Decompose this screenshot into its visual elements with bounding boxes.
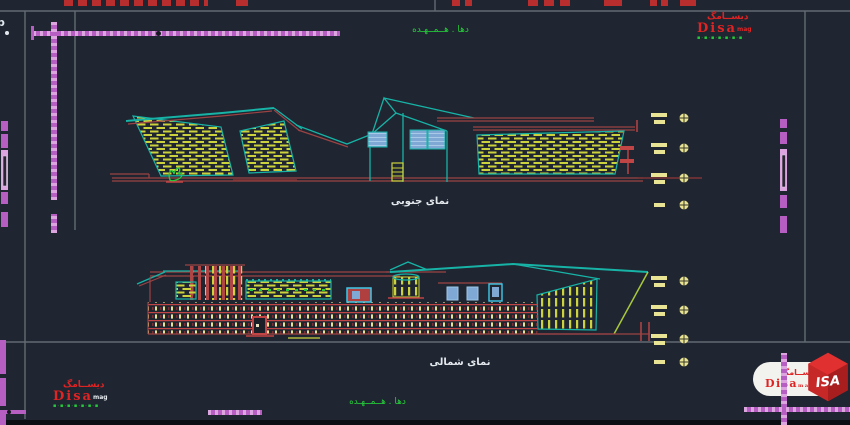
level-marker-icon — [651, 113, 689, 124]
window-blue-red — [347, 288, 371, 302]
bottom-right-magenta-vline — [781, 353, 787, 425]
left-magenta-section-marks — [0, 121, 26, 425]
south-elevation-label: نمای جنوبی — [375, 196, 465, 207]
disa-green-row: ▪·▪·▪·▪·▪·▪·▪ — [53, 404, 108, 409]
level-markers-north — [651, 276, 689, 367]
level-marker-icon — [654, 357, 689, 367]
framed-window — [489, 284, 502, 301]
svg-text:ISA: ISA — [815, 374, 841, 391]
ruler-dot — [156, 31, 161, 36]
level-marker-icon — [654, 200, 689, 210]
right-magenta-section-marks — [780, 119, 787, 233]
bottom-magenta-dash — [208, 410, 262, 415]
sheet-title-top: دها . هــمــهـده — [348, 25, 533, 35]
vertical-ruler-line-segment — [51, 214, 57, 233]
cylinder-column — [386, 262, 446, 298]
north-elevation-drawing — [137, 262, 650, 341]
horizontal-ruler-line — [33, 31, 340, 36]
ruler-end-tick — [31, 26, 34, 40]
south-elevation-drawing — [110, 98, 643, 182]
level-marker-icon — [651, 143, 689, 154]
disa-wordmark: Disamag — [697, 22, 752, 35]
disa-logo-top-right: دیســامگ Disamag ▪·▪·▪·▪·▪·▪·▪ — [697, 13, 752, 41]
level-marker-icon — [651, 305, 689, 316]
level-marker-icon — [651, 334, 689, 345]
bottom-right-magenta-hline — [744, 407, 850, 412]
disa-green-row: ▪·▪·▪·▪·▪·▪·▪ — [697, 36, 752, 41]
disa-wordmark: Disamag — [53, 390, 108, 403]
north-elevation-label: نمای شمالی — [420, 357, 500, 368]
level-markers-south — [638, 113, 702, 210]
disa-logo-bottom-left: دیســامگ Disamag ▪·▪·▪·▪·▪·▪·▪ — [53, 381, 108, 409]
level-marker-icon — [651, 276, 689, 287]
vertical-ruler-line — [51, 22, 57, 200]
isa-cube-logo: ISA — [806, 351, 850, 403]
stray-glyph: p — [0, 16, 5, 29]
cad-sheet: p دها . هــمــهـده دها . هــمــهـده نمای… — [0, 0, 850, 425]
stray-dot — [5, 31, 9, 35]
sheet-title-bottom: دها . هــمــهـده — [285, 397, 470, 407]
